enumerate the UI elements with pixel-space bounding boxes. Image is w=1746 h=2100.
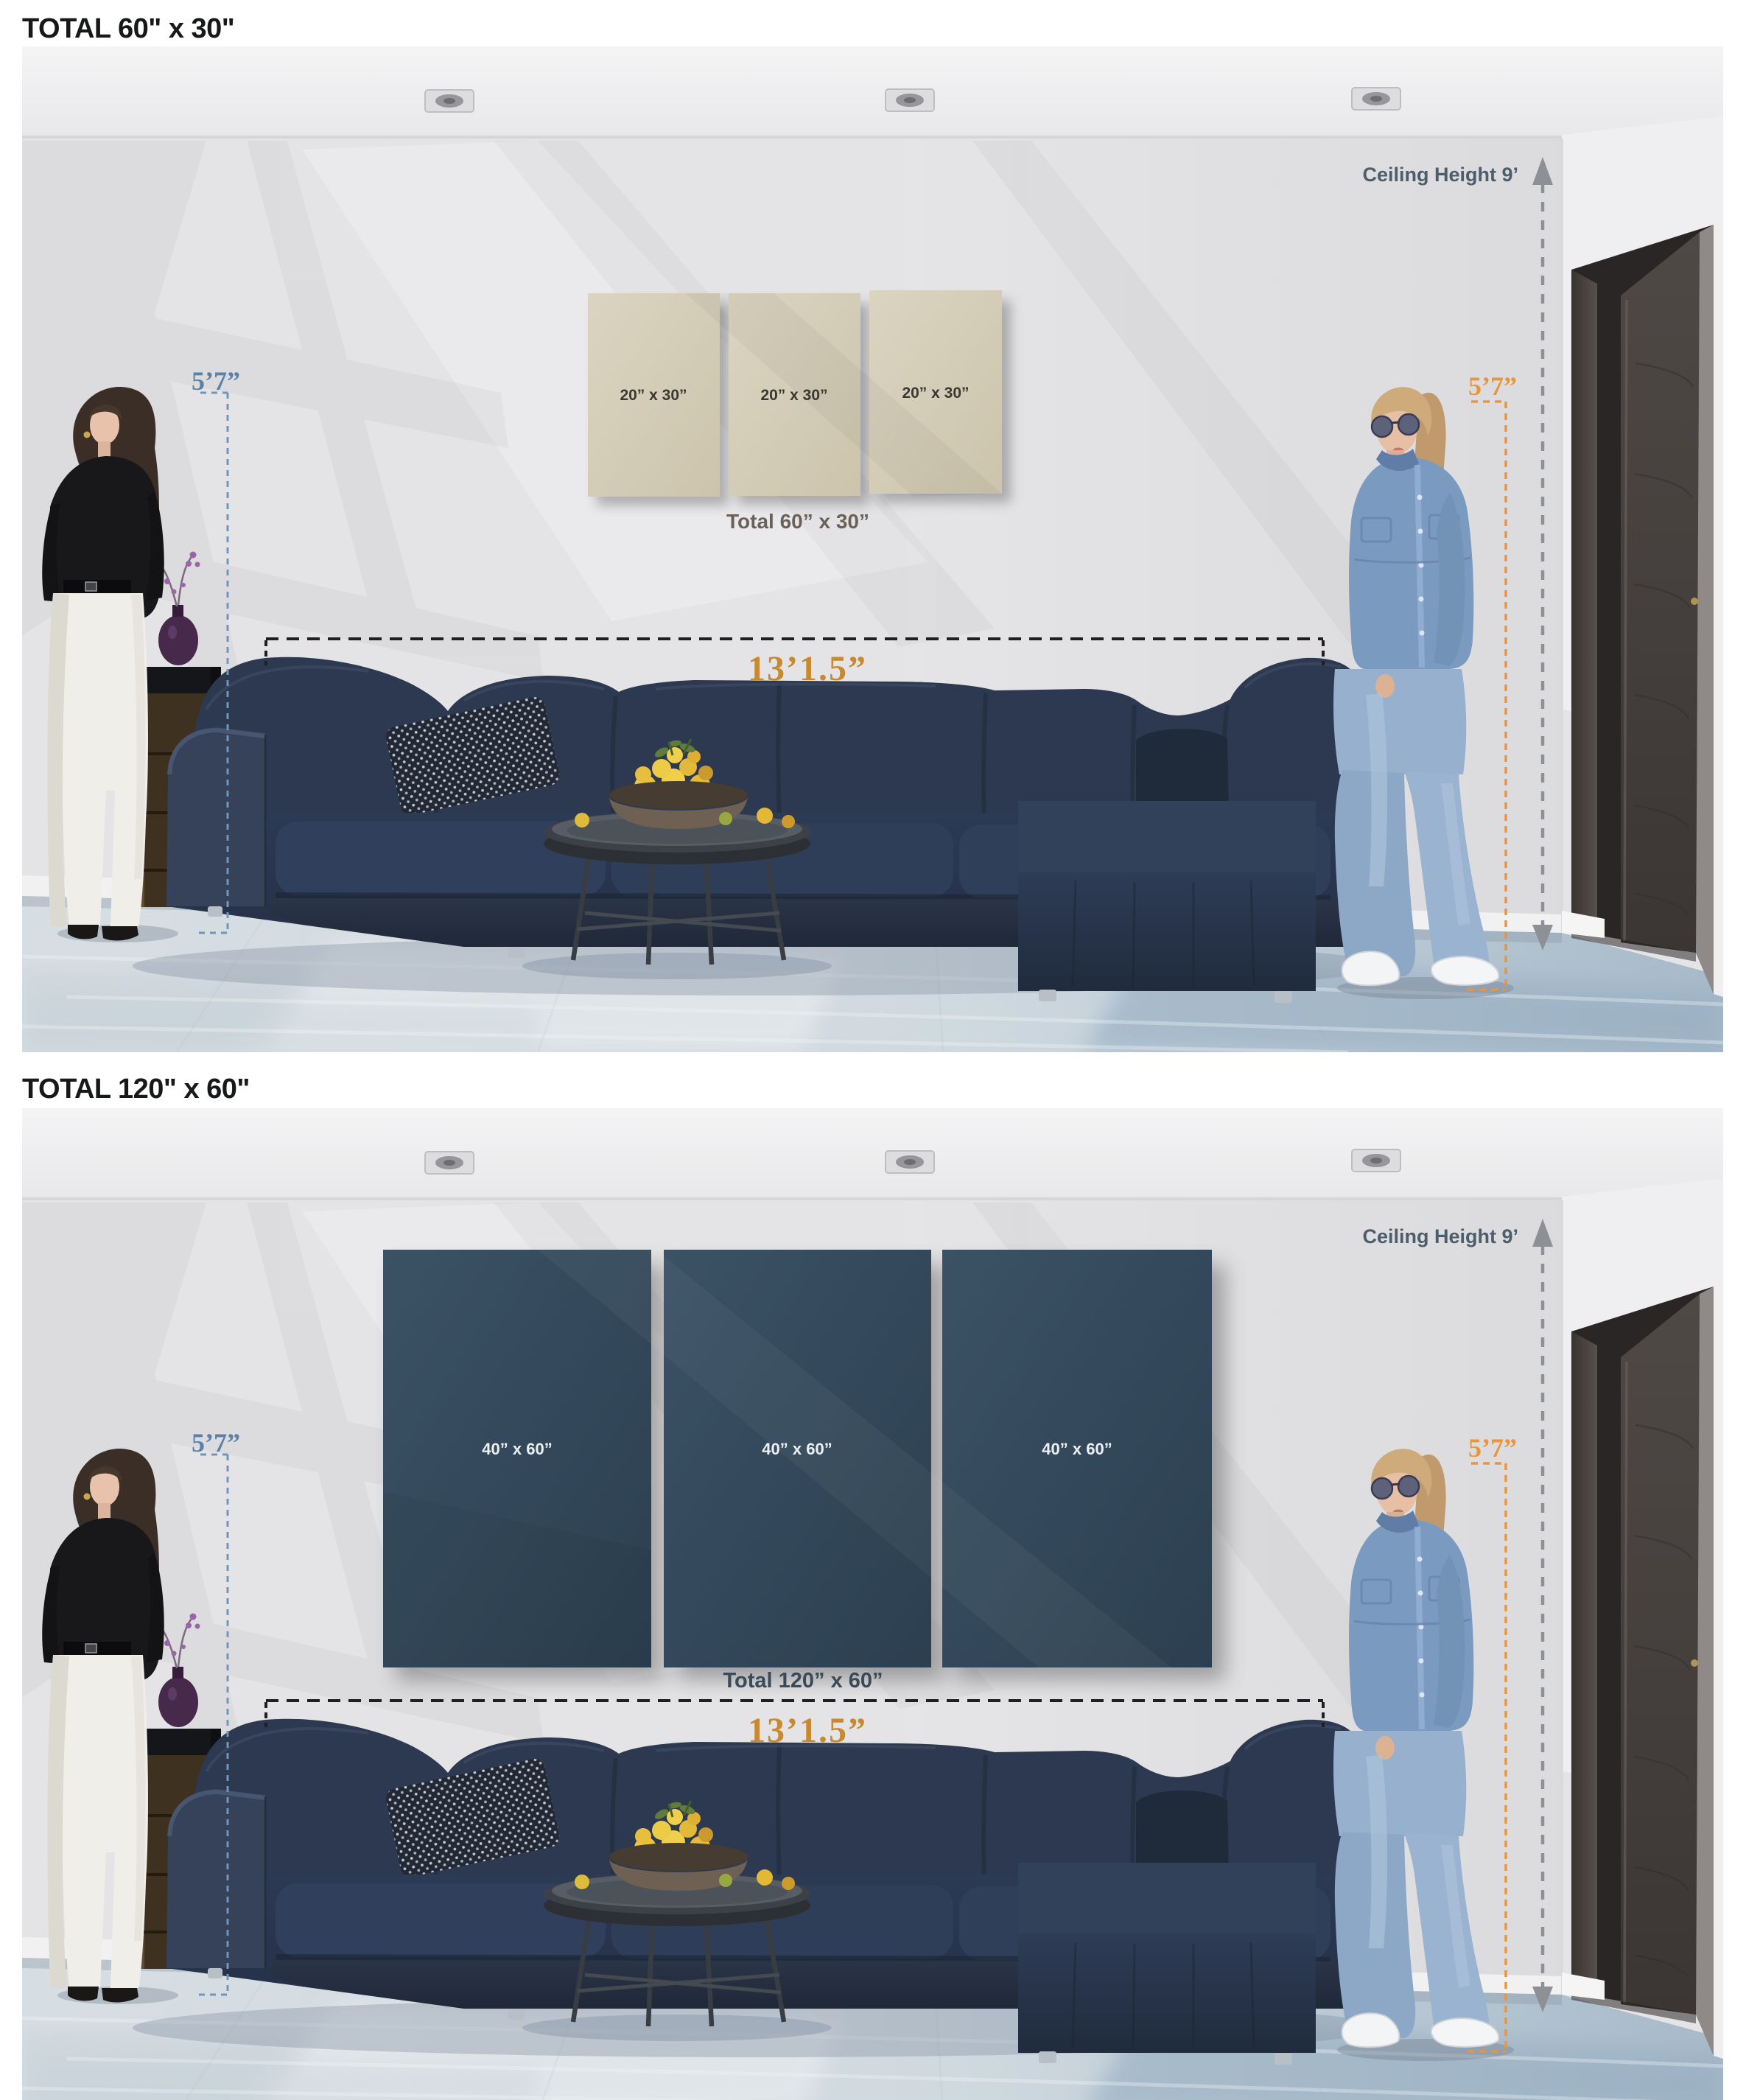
svg-text:20” x 30”: 20” x 30”	[902, 385, 969, 402]
svg-text:20” x 30”: 20” x 30”	[760, 387, 827, 404]
svg-text:Total 60” x 30”: Total 60” x 30”	[726, 510, 869, 533]
svg-text:20” x 30”: 20” x 30”	[620, 387, 687, 404]
svg-text:Total 120” x 60”: Total 120” x 60”	[723, 1669, 883, 1693]
svg-text:40” x 60”: 40” x 60”	[762, 1440, 832, 1458]
svg-text:40” x 60”: 40” x 60”	[482, 1440, 552, 1458]
svg-text:40” x 60”: 40” x 60”	[1042, 1440, 1112, 1458]
